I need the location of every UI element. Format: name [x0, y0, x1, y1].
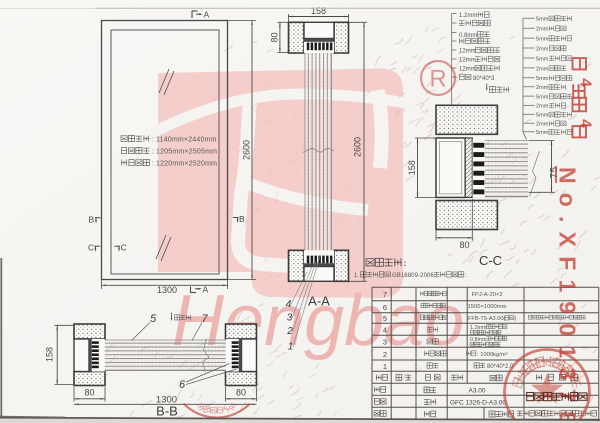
svg-text:5mm: 5mm: [536, 130, 549, 136]
svg-text:A-A: A-A: [308, 294, 330, 309]
svg-text:80*40*3: 80*40*3: [473, 76, 495, 82]
svg-text:5mm: 5mm: [536, 95, 549, 101]
svg-text:80: 80: [236, 388, 246, 398]
svg-text:12mm: 12mm: [459, 67, 476, 73]
svg-text:80: 80: [84, 388, 94, 398]
svg-text:A: A: [204, 10, 210, 20]
svg-text:5mm: 5mm: [536, 113, 549, 119]
svg-text:2mm: 2mm: [536, 27, 549, 33]
svg-text:4: 4: [286, 299, 292, 310]
svg-text:A: A: [203, 285, 209, 295]
svg-text:2mm: 2mm: [536, 66, 549, 72]
svg-text:1300: 1300: [157, 285, 177, 295]
svg-text:1.2mm: 1.2mm: [470, 325, 487, 331]
svg-text:C: C: [88, 242, 94, 252]
svg-text:FPJ-A-20×2: FPJ-A-20×2: [471, 292, 502, 298]
svg-text:C: C: [121, 242, 127, 252]
svg-text:GB16809-2006: GB16809-2006: [392, 273, 434, 279]
svg-text:FFB-T5-A3.00(: FFB-T5-A3.00(: [468, 316, 505, 322]
svg-text::: :: [152, 149, 154, 156]
svg-text:1.: 1.: [354, 273, 359, 279]
svg-text:B: B: [89, 215, 95, 225]
svg-text:3: 3: [287, 313, 293, 324]
svg-text:158: 158: [45, 347, 55, 362]
svg-text:6: 6: [383, 303, 387, 312]
svg-text:1220mm×2520mm: 1220mm×2520mm: [156, 161, 217, 168]
svg-text::: :: [404, 258, 407, 268]
svg-text:5mm: 5mm: [536, 37, 549, 43]
svg-text:B: B: [239, 214, 245, 224]
svg-text:2mm: 2mm: [536, 85, 549, 91]
svg-text:1.2mm: 1.2mm: [459, 13, 477, 19]
svg-text:2600: 2600: [353, 137, 363, 157]
svg-text:3: 3: [383, 337, 387, 346]
svg-text:B-B: B-B: [156, 404, 178, 419]
svg-text:2mm: 2mm: [536, 122, 549, 128]
svg-text:80: 80: [459, 240, 469, 250]
svg-text:5mm: 5mm: [536, 76, 549, 82]
svg-text:R: R: [429, 66, 446, 93]
svg-text:1500×1000mm: 1500×1000mm: [468, 304, 507, 310]
svg-text:5: 5: [150, 313, 157, 325]
svg-text:2: 2: [286, 326, 293, 337]
svg-text:0.8mm: 0.8mm: [459, 33, 477, 39]
svg-text:1205mm×2505mm: 1205mm×2505mm: [156, 149, 217, 156]
svg-text:GFC 1326-D-A3.00: GFC 1326-D-A3.00: [450, 400, 506, 407]
svg-text:2mm: 2mm: [536, 46, 549, 52]
svg-text:5mm: 5mm: [536, 17, 549, 23]
svg-text:5: 5: [383, 314, 387, 323]
svg-text:12mm: 12mm: [459, 58, 476, 64]
svg-text:2mm: 2mm: [536, 104, 549, 110]
svg-text:): ): [515, 316, 517, 322]
svg-text:1: 1: [288, 342, 294, 353]
svg-text:2600: 2600: [242, 140, 252, 160]
svg-text:80: 80: [269, 32, 279, 42]
svg-text:12mm: 12mm: [459, 49, 476, 55]
svg-text:2: 2: [383, 350, 387, 359]
svg-text:7: 7: [201, 313, 208, 325]
svg-text:5mm: 5mm: [536, 56, 549, 62]
svg-text:7: 7: [383, 290, 387, 299]
svg-text:158: 158: [407, 160, 417, 175]
svg-text:6: 6: [179, 379, 186, 391]
svg-text:1: 1: [383, 362, 387, 371]
svg-text:4: 4: [383, 325, 387, 334]
svg-text:A3.00: A3.00: [469, 388, 486, 395]
svg-text::: :: [152, 161, 154, 168]
svg-text:1140mm×2440mm: 1140mm×2440mm: [156, 137, 217, 144]
svg-text:0.8mm: 0.8mm: [470, 337, 487, 343]
svg-text:C-C: C-C: [479, 253, 502, 268]
svg-text::: :: [152, 137, 154, 144]
svg-text:: 1000kg/m³: : 1000kg/m³: [477, 352, 508, 358]
